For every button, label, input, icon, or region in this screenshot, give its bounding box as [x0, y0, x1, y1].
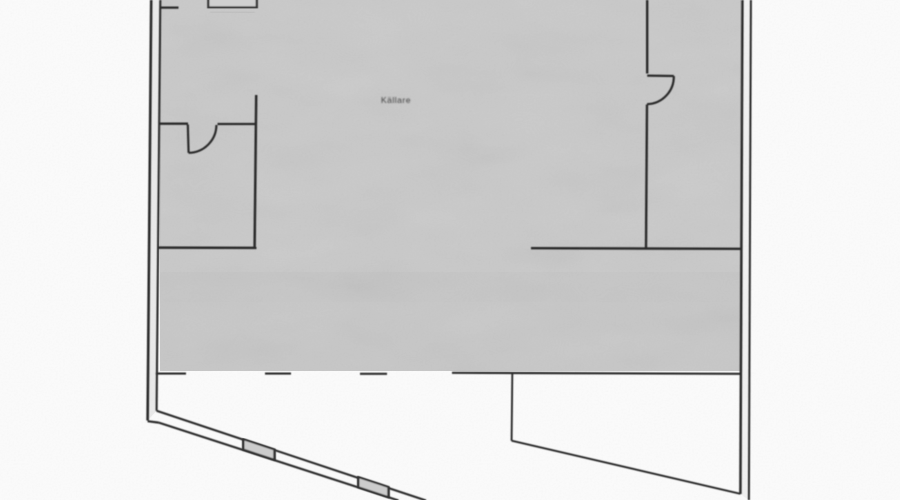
svg-text:Källare: Källare [381, 95, 411, 105]
